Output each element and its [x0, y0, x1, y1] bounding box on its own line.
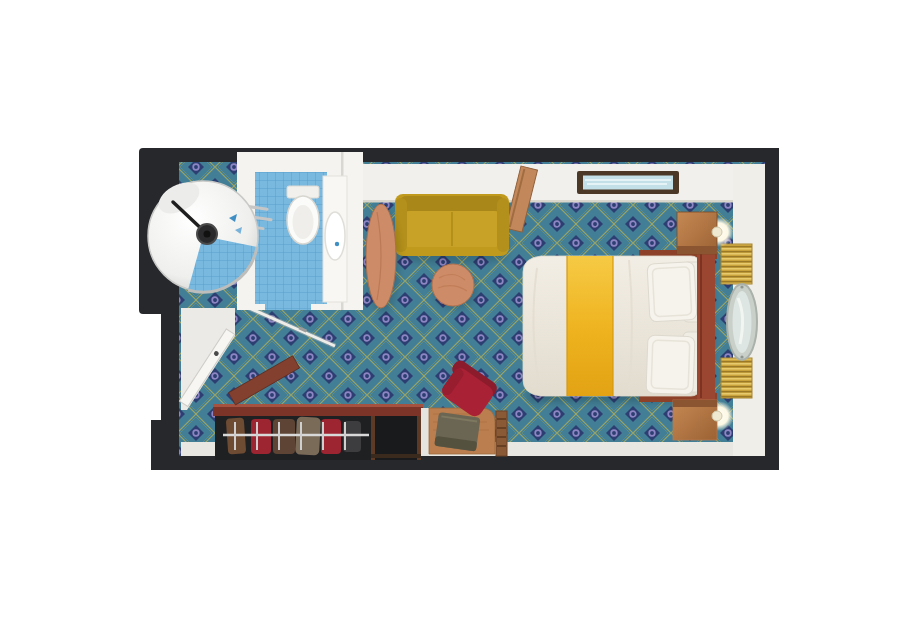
sofa-armrest-right [497, 198, 509, 252]
woven-panel-bottom [721, 358, 752, 398]
left-wall-step [151, 420, 183, 470]
ottoman [434, 412, 480, 452]
sink-drain [335, 242, 339, 246]
headboard [697, 250, 715, 402]
porthole-mirror [727, 284, 757, 360]
toilet [287, 186, 319, 244]
bedside-lamp-top [712, 227, 722, 237]
right-wall [763, 148, 779, 470]
floorplan-canvas [139, 148, 779, 470]
woven-panel-top [721, 244, 752, 284]
sink-vanity [323, 176, 347, 302]
gold-bed-runner [567, 256, 613, 396]
wall-picture [577, 171, 679, 194]
stateroom-floorplan [139, 148, 779, 470]
sofa-back-cushion [400, 196, 504, 212]
sofa [395, 194, 509, 263]
desk-area [421, 408, 507, 456]
double-bed [523, 250, 717, 402]
desk-side-panel [421, 408, 429, 456]
bedside-lamp-bottom [712, 411, 722, 421]
towel-ladder [496, 411, 507, 456]
open-shelf-cube [371, 414, 421, 460]
bathroom-doorway [265, 298, 311, 310]
picture-art [583, 176, 673, 190]
sink-basin [325, 212, 345, 260]
top-wall [357, 148, 779, 164]
